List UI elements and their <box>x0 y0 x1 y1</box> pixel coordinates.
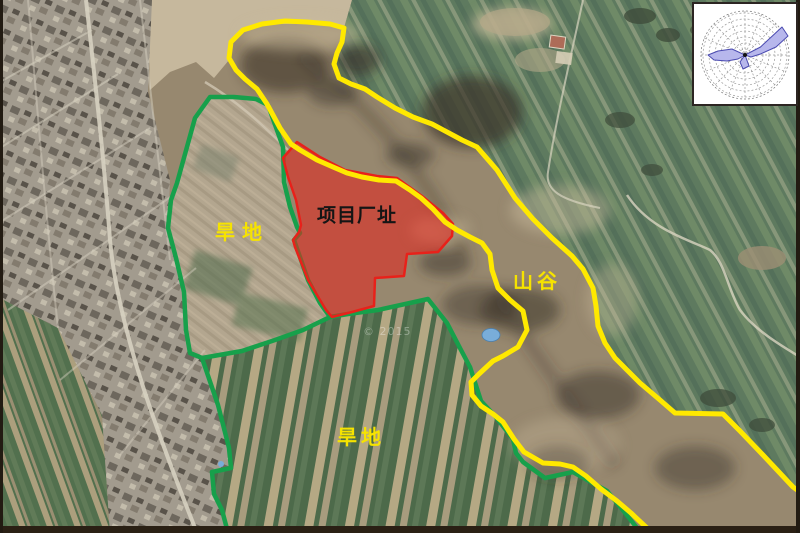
wind-rose-icon <box>694 4 796 104</box>
bottom-frame-edge <box>0 526 800 533</box>
pond <box>482 329 500 342</box>
satellite-background <box>0 0 800 533</box>
copyright-watermark: © 2015 <box>363 325 412 338</box>
satellite-map: 旱地 项目厂址 山谷 旱地 © 2015 <box>0 0 800 533</box>
label-dryland-lower: 旱地 <box>337 427 385 447</box>
label-dryland-upper: 旱地 <box>215 222 269 242</box>
farm-building <box>549 35 566 49</box>
left-frame-edge <box>0 0 3 533</box>
label-valley: 山谷 <box>513 271 561 291</box>
wind-rose-box <box>692 2 798 106</box>
small-pond <box>218 461 224 467</box>
label-project-site: 项目厂址 <box>317 207 397 226</box>
wind-rose-center <box>743 53 747 57</box>
